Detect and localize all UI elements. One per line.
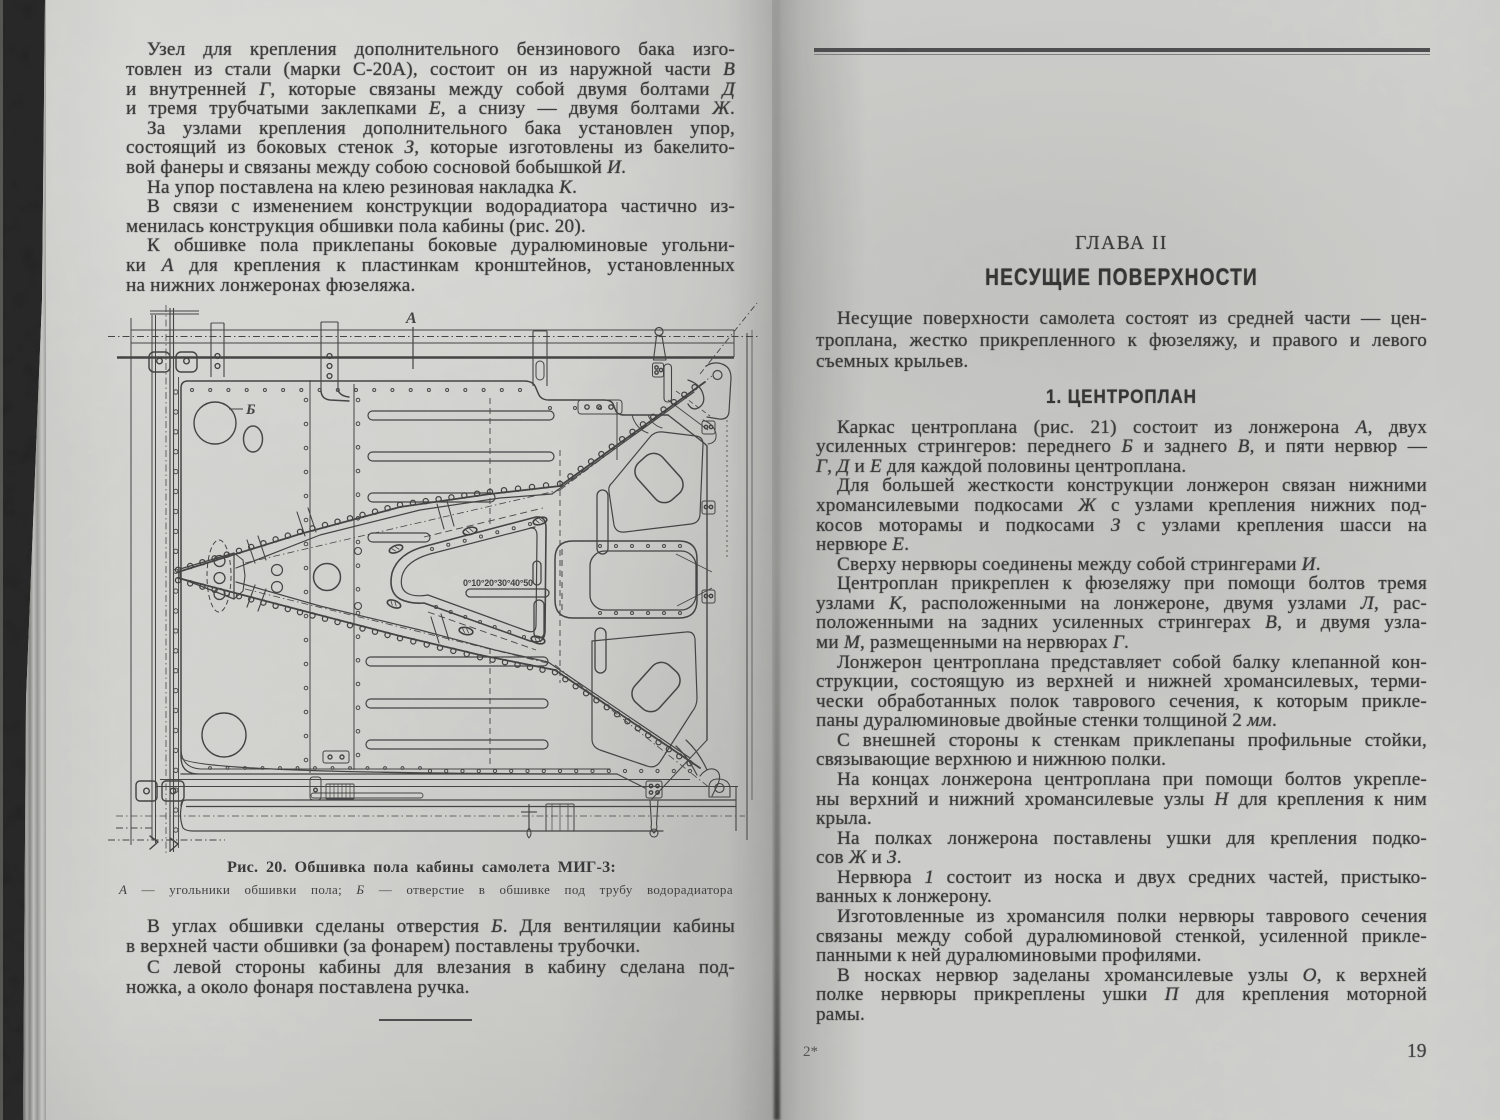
svg-text:Б: Б: [245, 402, 256, 418]
svg-text:А: А: [405, 310, 417, 327]
svg-text:0°10°20°30°40°50: 0°10°20°30°40°50: [463, 578, 533, 588]
